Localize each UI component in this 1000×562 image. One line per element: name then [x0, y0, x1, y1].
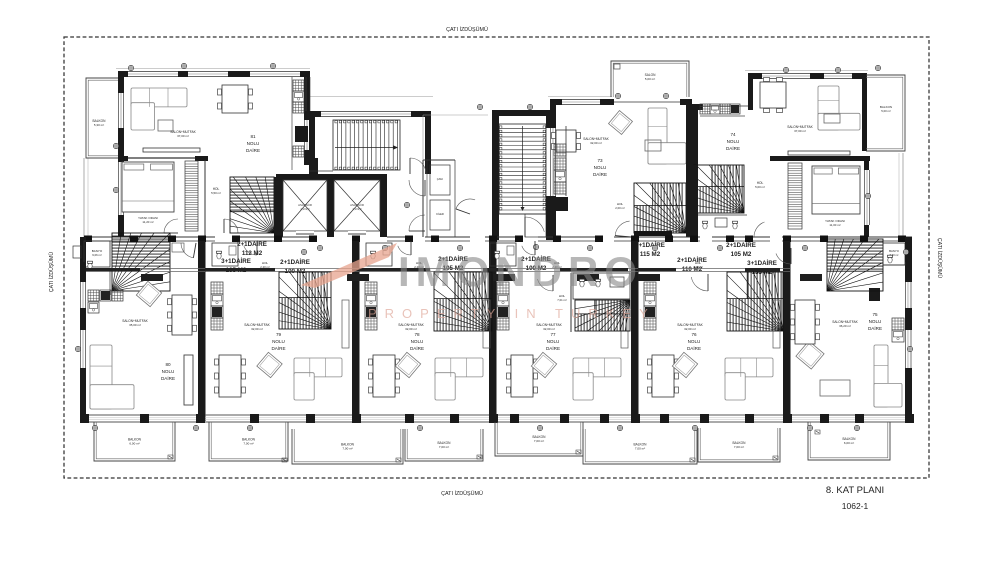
- svg-text:ÇATI İZDÜŞÜMÜ: ÇATI İZDÜŞÜMÜ: [48, 252, 55, 293]
- svg-text:ASANSÖR: ASANSÖR: [350, 203, 364, 207]
- svg-text:DAİRE: DAİRE: [161, 375, 175, 381]
- svg-text:11,00 m²: 11,00 m²: [829, 223, 840, 227]
- svg-text:ASANSÖR: ASANSÖR: [298, 203, 312, 207]
- svg-text:BANYO: BANYO: [889, 249, 900, 253]
- svg-text:32,00 m²: 32,00 m²: [543, 327, 555, 331]
- svg-text:7,00 m²: 7,00 m²: [635, 447, 645, 451]
- svg-text:DAİRE: DAİRE: [593, 171, 607, 177]
- svg-text:35,00 m²: 35,00 m²: [129, 323, 141, 327]
- svg-text:8. KAT PLANI: 8. KAT PLANI: [826, 485, 884, 496]
- svg-text:2+1DAİRE: 2+1DAİRE: [677, 257, 707, 264]
- svg-text:78: 78: [414, 332, 420, 337]
- svg-text:9,06 m²: 9,06 m²: [92, 253, 102, 257]
- svg-text:NOLU: NOLU: [547, 339, 560, 344]
- svg-text:5,50 m²: 5,50 m²: [211, 191, 221, 195]
- svg-text:ÇATI İZDÜŞÜMÜ: ÇATI İZDÜŞÜMÜ: [446, 26, 488, 33]
- svg-text:36,20 m²: 36,20 m²: [839, 324, 851, 328]
- svg-text:DAİRE: DAİRE: [546, 345, 560, 351]
- svg-text:5,30 m²: 5,30 m²: [94, 123, 104, 127]
- svg-text:ÇAM.: ÇAM.: [437, 177, 444, 181]
- svg-text:NOLU: NOLU: [727, 139, 740, 144]
- svg-text:105 M2: 105 M2: [731, 251, 752, 258]
- svg-text:112 M2: 112 M2: [242, 250, 263, 257]
- svg-text:NOLU: NOLU: [869, 319, 882, 324]
- svg-text:DAİRE: DAİRE: [687, 345, 701, 351]
- svg-text:NOLU: NOLU: [272, 339, 285, 344]
- svg-text:2+1DAİRE: 2+1DAİRE: [280, 259, 310, 266]
- svg-text:PROPERTY IN TURKEY: PROPERTY IN TURKEY: [368, 306, 656, 321]
- svg-text:32,00 m²: 32,00 m²: [251, 327, 263, 331]
- svg-text:73: 73: [597, 158, 603, 163]
- svg-text:7,00 m²: 7,00 m²: [439, 445, 449, 449]
- svg-text:NOLU: NOLU: [247, 141, 260, 146]
- svg-text:11,20 m²: 11,20 m²: [142, 220, 153, 224]
- svg-text:NOLU: NOLU: [162, 369, 175, 374]
- svg-text:81: 81: [250, 134, 256, 139]
- svg-text:37,00 m²: 37,00 m²: [177, 134, 189, 138]
- svg-text:2,1X2,0: 2,1X2,0: [301, 207, 310, 211]
- svg-text:6,00 m²: 6,00 m²: [844, 441, 854, 445]
- svg-text:6,00 m²: 6,00 m²: [129, 442, 139, 446]
- svg-text:DAİRE: DAİRE: [726, 145, 740, 151]
- svg-text:5,00 m²: 5,00 m²: [881, 109, 891, 113]
- svg-text:76: 76: [691, 332, 697, 337]
- svg-text:3+1DAİRE: 3+1DAİRE: [747, 260, 777, 267]
- svg-text:7,00 m²: 7,00 m²: [734, 445, 744, 449]
- svg-text:NOLU: NOLU: [594, 165, 607, 170]
- svg-text:75: 75: [872, 312, 878, 317]
- svg-text:1062-1: 1062-1: [842, 501, 869, 511]
- svg-text:IMONDRO: IMONDRO: [398, 248, 643, 295]
- svg-text:2,20 m²: 2,20 m²: [260, 265, 270, 269]
- svg-text:2+1DAİRE: 2+1DAİRE: [237, 241, 267, 248]
- svg-text:2,20 m²: 2,20 m²: [693, 265, 703, 269]
- svg-text:7,00 m²: 7,00 m²: [243, 442, 253, 446]
- svg-text:2,00 m²: 2,00 m²: [615, 206, 625, 210]
- svg-text:32,00 m²: 32,00 m²: [590, 141, 602, 145]
- svg-text:5,00 m²: 5,00 m²: [755, 185, 765, 189]
- svg-text:DAİRE: DAİRE: [271, 345, 285, 351]
- svg-text:32,00 m²: 32,00 m²: [405, 327, 417, 331]
- svg-text:7,00 m²: 7,00 m²: [534, 439, 544, 443]
- svg-text:3+1DAİRE: 3+1DAİRE: [221, 258, 251, 265]
- svg-text:37,00 m²: 37,00 m²: [794, 129, 806, 133]
- svg-text:77: 77: [550, 332, 556, 337]
- svg-text:74: 74: [730, 132, 736, 137]
- svg-text:ÇATI İZDÜŞÜMÜ: ÇATI İZDÜŞÜMÜ: [441, 490, 483, 497]
- svg-text:DAİRE: DAİRE: [410, 345, 424, 351]
- svg-text:NOLU: NOLU: [688, 339, 701, 344]
- svg-text:7,01 m²: 7,01 m²: [557, 298, 567, 302]
- svg-text:79: 79: [276, 332, 282, 337]
- svg-text:DAİRE: DAİRE: [246, 147, 260, 153]
- svg-text:ÇATI İZDÜŞÜMÜ: ÇATI İZDÜŞÜMÜ: [936, 238, 943, 279]
- svg-text:NOLU: NOLU: [411, 339, 424, 344]
- svg-text:5,00 m²: 5,00 m²: [645, 77, 655, 81]
- svg-text:DAİRE: DAİRE: [868, 325, 882, 331]
- svg-text:7,00 m²: 7,00 m²: [342, 447, 352, 451]
- svg-text:2,1X2,0: 2,1X2,0: [353, 207, 362, 211]
- svg-text:32,00 m²: 32,00 m²: [684, 327, 696, 331]
- svg-text:80: 80: [165, 362, 171, 367]
- svg-text:2+1DAİRE: 2+1DAİRE: [726, 242, 756, 249]
